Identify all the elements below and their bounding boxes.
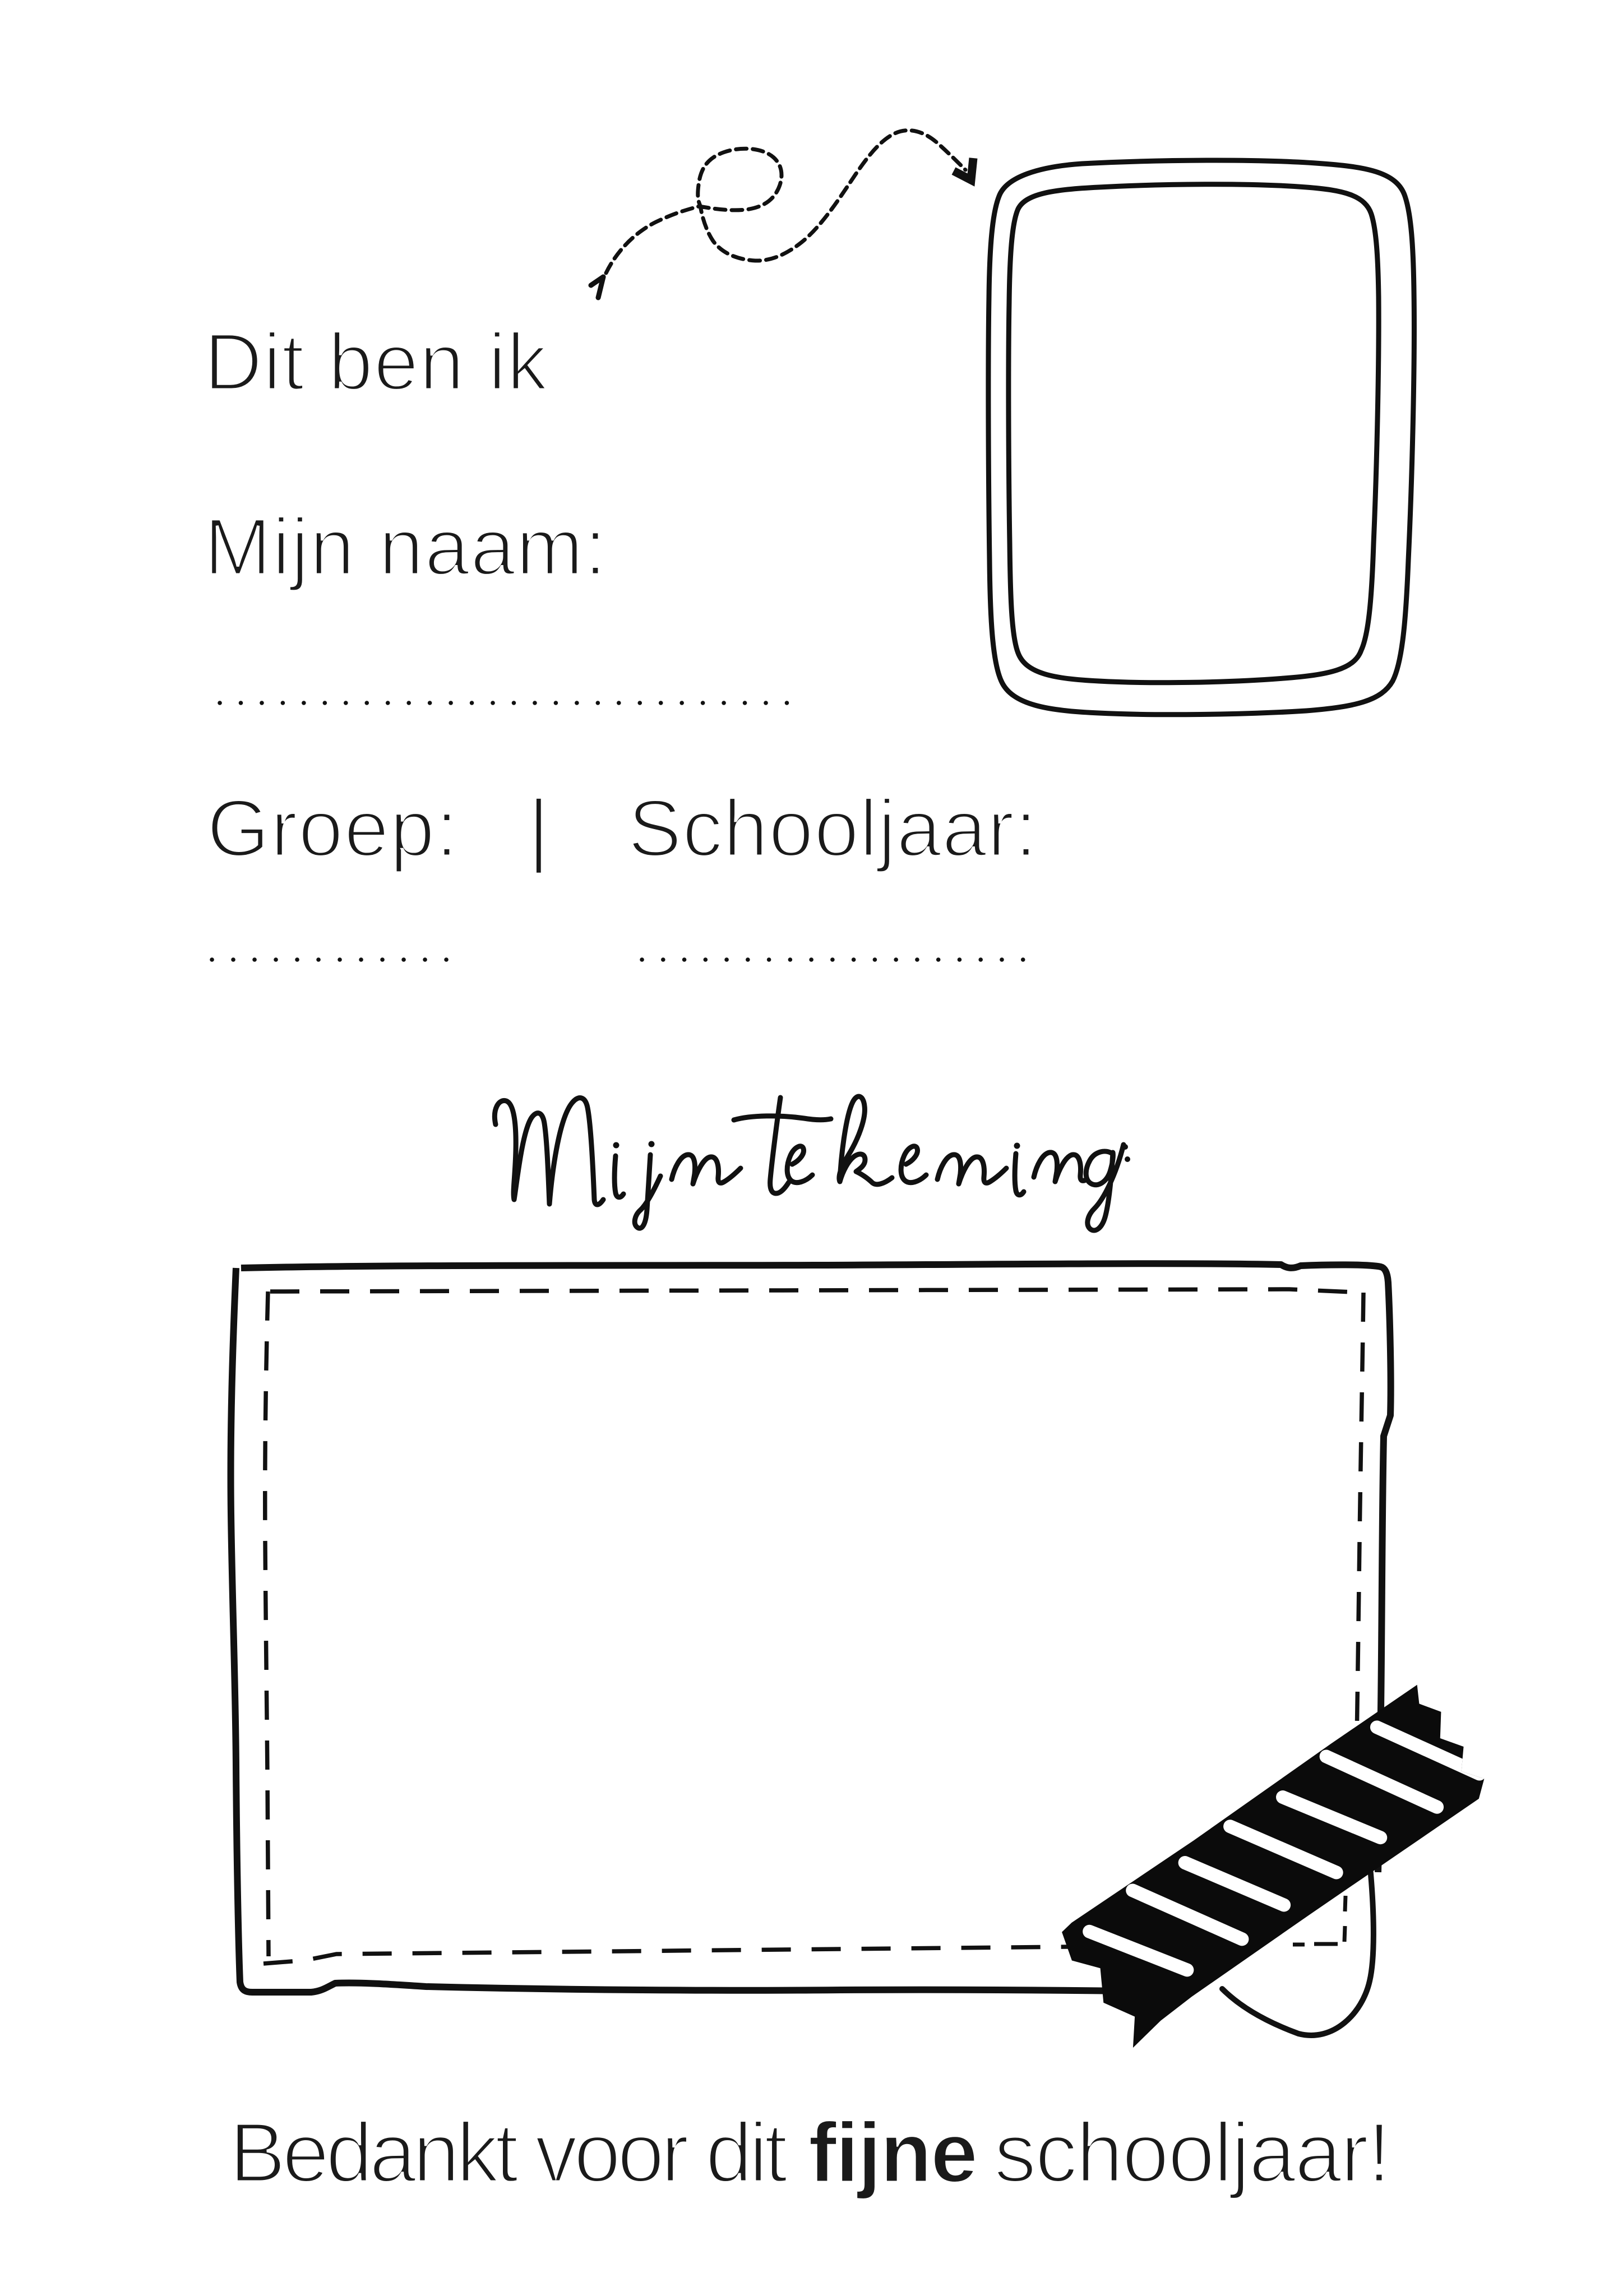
svg-text:fijne: fijne [808,2105,978,2200]
svg-text:|: | [528,783,549,874]
svg-text:Groep:: Groep: [207,783,458,873]
svg-text:Dit ben ik: Dit ben ik [204,317,548,407]
svg-text:schooljaar!: schooljaar! [994,2105,1391,2200]
svg-text:Schooljaar:: Schooljaar: [628,783,1037,873]
svg-text:Mijn naam:: Mijn naam: [204,502,607,592]
svg-text:Bedankt voor dit: Bedankt voor dit [229,2105,788,2200]
